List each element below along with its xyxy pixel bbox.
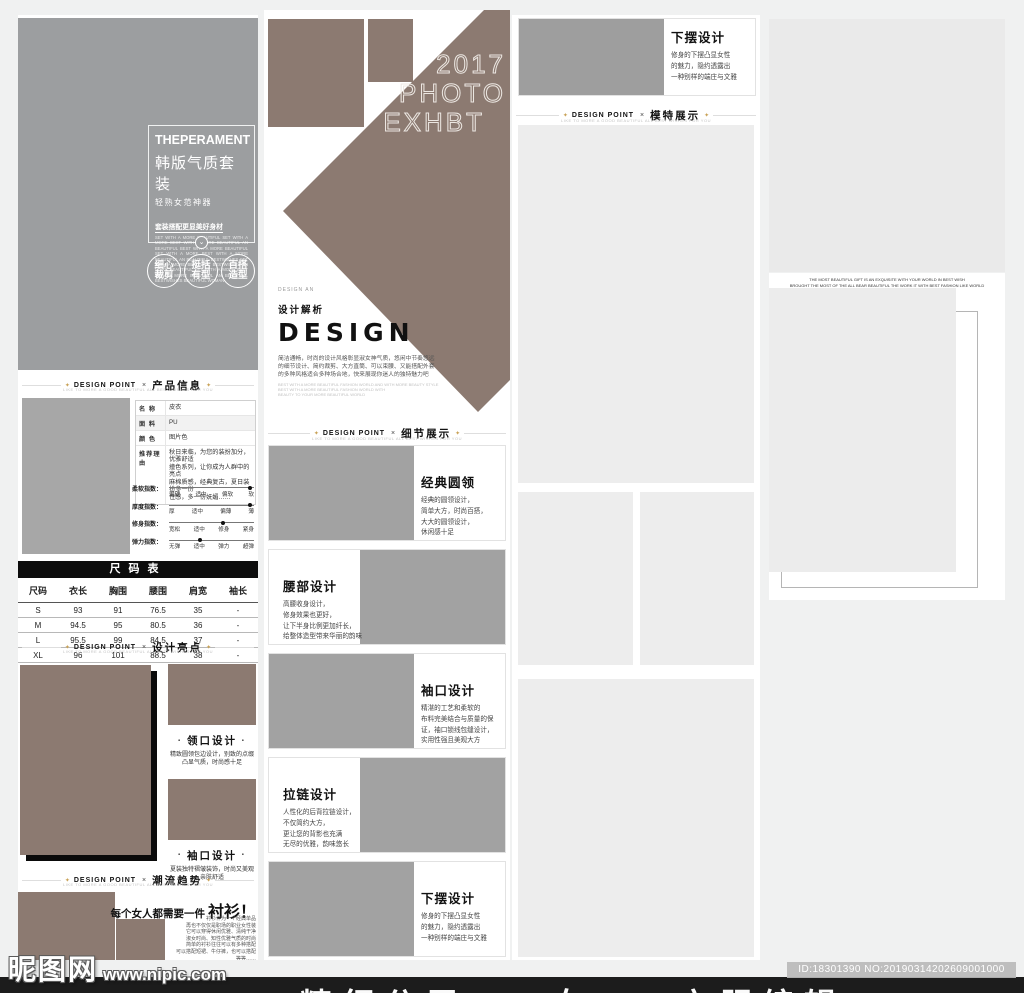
divider-subcaption: LIKE TO MORE A GOOD BEAUTIFUL ALL BEST W… (18, 387, 258, 392)
caption-text: 袖口设计 (187, 848, 237, 863)
cell: 95 (98, 621, 138, 630)
cell: S (18, 606, 58, 615)
detail-lines: 精湛的工艺和柔软的 布料完美结合与质量的保 证，袖口锁线包缝设计， 实用性强且美… (421, 704, 510, 747)
bullet-icon: • (242, 738, 246, 744)
table-row: 名 称 皮衣 (136, 401, 255, 416)
feature-badges: 细心 裁剪 挺括 有型 百搭 造型 (147, 254, 255, 288)
detail-lines: 修身的下摆凸显女性 的魅力，隐约透露出 一种别样的端庄与文雅 (671, 51, 760, 83)
col-header: 腰围 (138, 584, 178, 597)
detail-title: 下摆设计 (671, 27, 760, 46)
tick-label: 适中 (192, 507, 203, 515)
cell: 93 (58, 606, 98, 615)
slider-label: 修身指数： (132, 519, 162, 528)
col-header: 衣长 (58, 584, 98, 597)
feature-badge: 细心 裁剪 (147, 254, 181, 288)
attr-label: 名 称 (136, 401, 166, 415)
bullet-icon: • (178, 738, 182, 744)
product-info-section: 名 称 皮衣 面 料 PU 颜 色 图片色 推荐理由 秋日来临，为您的装扮加分，… (18, 395, 258, 559)
attr-label: 颜 色 (136, 431, 166, 445)
poster-square-shape (268, 19, 364, 127)
slider-ticks: 厚 适中 偏薄 薄 (169, 507, 254, 515)
design-subtitle: 设计解析 (278, 302, 458, 316)
index-slider: 修身指数： 宽松 适中 修身 紧身 (132, 518, 256, 536)
detail-lines: 修身的下摆凸显女性 的魅力，隐约透露出 一种别样的端庄与文雅 (421, 912, 510, 944)
cell: 36 (178, 621, 218, 630)
slider-ticks: 偏硬 适中 偏软 软 (169, 490, 254, 498)
thumb-image-placeholder (168, 664, 256, 725)
cell: M (18, 621, 58, 630)
attr-label: 面 料 (136, 416, 166, 430)
divider-line (215, 647, 254, 648)
hero-title: 韩版气质套装 (155, 152, 248, 194)
cell: 94.5 (58, 621, 98, 630)
design-body: 简洁通畅，时尚的设计风格彰显淑女神气质，悠闲中节奏悠远 的细节设计、简约裁剪、大… (278, 355, 458, 379)
divider-subcaption: LIKE TO MORE A GOOD BEAUTIFUL ALL BEST W… (512, 118, 760, 123)
slider-track (169, 487, 254, 488)
design-title: DESIGN (278, 318, 458, 347)
photo-placeholder (769, 288, 956, 572)
model-photo-placeholder (518, 492, 633, 665)
design-poster: 2017 PHOTO EXHBT DESIGN AN 设计解析 DESIGN 简… (264, 10, 510, 422)
detail-text: 经典圆领 经典的圆领设计， 简单大方，时尚百搭， 大大的圆领设计， 休闲感十足 (421, 472, 510, 539)
divider-line (464, 433, 506, 434)
design-caption: DESIGN AN (278, 287, 458, 293)
hero-text-frame: THEPERAMENT 韩版气质套装 轻熟女范神器 套装搭配更显美好身材 SET… (148, 125, 255, 243)
detail-title: 下摆设计 (421, 888, 510, 907)
col-header: 袖长 (218, 584, 258, 597)
tick-label: 适中 (194, 525, 205, 533)
tick-label: 偏硬 (169, 490, 180, 498)
divider-subcaption: LIKE TO MORE A GOOD BEAUTIFUL ALL BEST W… (18, 649, 258, 654)
divider-subcaption: LIKE TO MORE A GOOD BEAUTIFUL ALL BEST W… (18, 882, 258, 887)
poster-outline-text: 2017 PHOTO EXHBT (383, 50, 506, 137)
tick-label: 弹力 (218, 542, 229, 550)
feature-badge: 百搭 造型 (221, 254, 255, 288)
index-slider: 厚度指数： 厚 适中 偏薄 薄 (132, 501, 256, 519)
tick-label: 偏软 (222, 490, 233, 498)
divider-subcaption: LIKE TO MORE A GOOD BEAUTIFUL ALL BEST W… (264, 436, 510, 441)
col-header: 肩宽 (178, 584, 218, 597)
cell: 76.5 (138, 606, 178, 615)
tick-label: 紧身 (243, 525, 254, 533)
tick-label: 无弹 (169, 542, 180, 550)
model-photo-placeholder (640, 492, 754, 665)
slider-ticks: 无弹 适中 弹力 超弹 (169, 542, 254, 550)
panel-note-line: THE MOST BEAUTIFUL GIFT IS AN EXQUISITE … (769, 277, 1005, 282)
site-watermark: 昵图网 www.nipic.com (8, 948, 226, 988)
feature-badge: 挺括 有型 (184, 254, 218, 288)
detail-image-placeholder (269, 446, 414, 540)
detail-lines: 经典的圆领设计， 简单大方，时尚百搭， 大大的圆领设计， 休闲感十足 (421, 496, 510, 539)
index-slider: 柔软指数： 偏硬 适中 偏软 软 (132, 483, 256, 501)
tick-label: 超弹 (243, 542, 254, 550)
cell: - (218, 621, 258, 630)
detail-image-placeholder (519, 19, 664, 95)
hero-banner: THEPERAMENT 韩版气质套装 轻熟女范神器 套装搭配更显美好身材 SET… (18, 18, 258, 370)
model-photo-placeholder (518, 679, 754, 957)
detail-page-column-2: 2017 PHOTO EXHBT DESIGN AN 设计解析 DESIGN 简… (264, 10, 510, 960)
detail-text: 腰部设计 高腰收身设计， 修身效果也更好， 让下半身比例更加纤长， 给整体造型带… (283, 576, 375, 643)
poster-word: EXHBT (383, 108, 485, 137)
detail-text: 袖口设计 精湛的工艺和柔软的 布料完美结合与质量的保 证，袖口锁线包缝设计， 实… (421, 680, 510, 747)
detail-card: 下摆设计 修身的下摆凸显女性 的魅力，隐约透露出 一种别样的端庄与文雅 (268, 861, 506, 957)
detail-text: 拉链设计 人性化的后背拉链设计， 不仅简约大方， 更让您的背影也充满 无尽的优雅… (283, 784, 375, 851)
slider-label: 厚度指数： (132, 502, 162, 511)
divider-line (22, 880, 61, 881)
slider-ticks: 宽松 适中 修身 紧身 (169, 525, 254, 533)
detail-image-placeholder (360, 758, 505, 852)
slider-track (169, 505, 254, 506)
framed-photo-panel: THE MOST BEAUTIFUL GIFT IS AN EXQUISITE … (769, 273, 1005, 600)
highlight-thumbs: • 领口设计 • 精致圆领包边设计，别致的点缀 凸显气质，时尚感十足 • 袖口设… (168, 664, 256, 883)
col-header: 尺码 (18, 584, 58, 597)
design-intro: DESIGN AN 设计解析 DESIGN 简洁通畅，时尚的设计风格彰显淑女神气… (278, 287, 458, 398)
design-fineprint: BEST WITH A MORE BEAUTIFUL FASHION WORLD… (278, 382, 458, 398)
chevron-down-icon: ⌄ (195, 236, 208, 249)
detail-text: 下摆设计 修身的下摆凸显女性 的魅力，隐约透露出 一种别样的端庄与文雅 (671, 27, 760, 83)
slider-track (169, 540, 254, 541)
photo-placeholder (769, 19, 1005, 272)
nipic-url: www.nipic.com (103, 965, 226, 988)
slider-track (169, 522, 254, 523)
divider-line (22, 385, 61, 386)
detail-title: 拉链设计 (283, 784, 375, 803)
detail-image-placeholder (269, 862, 414, 956)
tick-label: 软 (248, 490, 254, 498)
highlight-caption: • 袖口设计 • (168, 848, 256, 863)
attr-value: PU (166, 416, 255, 430)
detail-text: 下摆设计 修身的下摆凸显女性 的魅力，隐约透露出 一种别样的端庄与文雅 (421, 888, 510, 944)
cell: 35 (178, 606, 218, 615)
col-header: 胸围 (98, 584, 138, 597)
bullet-icon: • (178, 852, 182, 858)
slider-label: 柔软指数： (132, 484, 162, 493)
thumb-image-placeholder (168, 779, 256, 840)
index-sliders: 柔软指数： 偏硬 适中 偏软 软 厚度指数： 厚 适中 偏薄 薄 (132, 483, 256, 553)
model-photo-placeholder (518, 125, 754, 483)
product-image-placeholder (22, 398, 130, 554)
detail-image-placeholder (269, 654, 414, 748)
cell: - (218, 606, 258, 615)
tick-label: 偏薄 (220, 507, 231, 515)
divider-line (268, 433, 310, 434)
tick-label: 宽松 (169, 525, 180, 533)
bullet-icon: • (242, 852, 246, 858)
detail-lines: 人性化的后背拉链设计， 不仅简约大方， 更让您的背影也充满 无尽的优雅，韵味悠长 (283, 808, 375, 851)
detail-card: 下摆设计 修身的下摆凸显女性 的魅力，隐约透露出 一种别样的端庄与文雅 (518, 18, 756, 96)
size-table-title: 尺码表 (18, 561, 258, 578)
detail-title: 腰部设计 (283, 576, 375, 595)
tick-label: 薄 (248, 507, 254, 515)
tick-label: 适中 (195, 490, 206, 498)
attr-value: 皮衣 (166, 401, 255, 415)
caption-text: 领口设计 (187, 733, 237, 748)
highlight-caption: • 领口设计 • (168, 733, 256, 748)
divider-line (713, 115, 756, 116)
detail-image-placeholder (360, 550, 505, 644)
highlight-desc: 精致圆领包边设计，别致的点缀 凸显气质，时尚感十足 (168, 751, 256, 768)
divider-line (516, 115, 559, 116)
detail-card: 袖口设计 精湛的工艺和柔软的 布料完美结合与质量的保 证，袖口锁线包缝设计， 实… (268, 653, 506, 749)
hero-subtitle: 轻熟女范神器 (155, 197, 248, 208)
detail-title: 袖口设计 (421, 680, 510, 699)
cell: 80.5 (138, 621, 178, 630)
detail-lines: 高腰收身设计， 修身效果也更好， 让下半身比例更加纤长， 给整体造型带来华丽的韵… (283, 600, 375, 643)
slider-label: 弹力指数： (132, 537, 162, 546)
divider-line (22, 647, 61, 648)
table-row: M94.59580.536- (18, 618, 258, 633)
divider-line (215, 385, 254, 386)
table-row: 颜 色 图片色 (136, 431, 255, 446)
divider-line (215, 880, 254, 881)
footer-banner-text: 精细分层——女——衣服编辑 (300, 980, 846, 993)
design-highlights-section: • 领口设计 • 精致圆领包边设计，别致的点缀 凸显气质，时尚感十足 • 袖口设… (18, 658, 258, 870)
detail-title: 经典圆领 (421, 472, 510, 491)
detail-page-column-3: 下摆设计 修身的下摆凸显女性 的魅力，隐约透露出 一种别样的端庄与文雅 ✦ DE… (512, 15, 760, 960)
table-row: S939176.535- (18, 603, 258, 618)
index-slider: 弹力指数： 无弹 适中 弹力 超弹 (132, 536, 256, 554)
tick-label: 适中 (194, 542, 205, 550)
nipic-logo: 昵图网 (8, 948, 98, 988)
detail-card: 拉链设计 人性化的后背拉链设计， 不仅简约大方， 更让您的背影也充满 无尽的优雅… (268, 757, 506, 853)
poster-year: 2017 (383, 50, 506, 79)
detail-card: 经典圆领 经典的圆领设计， 简单大方，时尚百搭， 大大的圆领设计， 休闲感十足 (268, 445, 506, 541)
poster-word: PHOTO (383, 79, 506, 108)
detail-card: 腰部设计 高腰收身设计， 修身效果也更好， 让下半身比例更加纤长， 给整体造型带… (268, 549, 506, 645)
attr-value: 图片色 (166, 431, 255, 445)
hero-slogan: 套装搭配更显美好身材 (155, 221, 248, 231)
tick-label: 厚 (169, 507, 175, 515)
table-row: 面 料 PU (136, 416, 255, 431)
tick-label: 修身 (218, 525, 229, 533)
detail-page-column-1: THEPERAMENT 韩版气质套装 轻熟女范神器 套装搭配更显美好身材 SET… (18, 15, 258, 960)
highlight-image-placeholder (20, 665, 151, 855)
image-id-badge: ID:18301390 NO:20190314202609001000 (787, 962, 1016, 978)
cell: 91 (98, 606, 138, 615)
size-table-header: 尺码 衣长 胸围 腰围 肩宽 袖长 (18, 578, 258, 603)
brand-name: THEPERAMENT (155, 133, 248, 147)
